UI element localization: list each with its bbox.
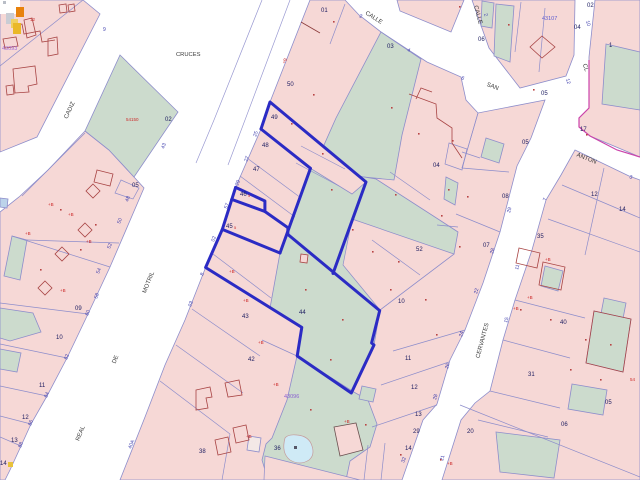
svg-text:+B: +B [447,461,453,466]
svg-text:+B: +B [258,340,264,345]
svg-text:05: 05 [522,140,529,146]
svg-text:31: 31 [528,372,535,378]
svg-text:36: 36 [274,446,281,452]
svg-text:40: 40 [560,320,567,326]
svg-text:+B: +B [246,434,252,439]
svg-text:47: 47 [253,167,260,173]
svg-text:35: 35 [537,234,544,240]
svg-text:+B: +B [243,298,249,303]
svg-text:14: 14 [619,207,626,213]
svg-text:08: 08 [502,194,509,200]
svg-text:17: 17 [580,127,587,133]
svg-text:05: 05 [541,91,548,97]
svg-text:13: 13 [11,438,18,444]
svg-text:43107: 43107 [542,16,557,22]
svg-text:14: 14 [405,446,412,452]
svg-text:11: 11 [39,383,46,389]
svg-text:05: 05 [132,183,139,189]
svg-text:04: 04 [433,163,440,169]
svg-text:52: 52 [416,247,423,253]
svg-text:07: 07 [483,243,490,249]
svg-text:+B: +B [273,382,279,387]
svg-text:44: 44 [299,310,306,316]
svg-text:11: 11 [405,356,412,362]
svg-text:49: 49 [271,115,278,121]
svg-text:43096: 43096 [284,394,299,400]
svg-text:10: 10 [398,299,405,305]
svg-text:43093: 43093 [2,46,17,52]
svg-text:45: 45 [226,224,233,230]
svg-text:43: 43 [242,314,249,320]
svg-text:+B: +B [60,288,66,293]
svg-text:12: 12 [30,17,36,22]
svg-text:50: 50 [287,82,294,88]
svg-text:12: 12 [411,385,418,391]
svg-text:+B: +B [545,257,551,262]
svg-text:9: 9 [103,27,106,33]
svg-text:42: 42 [248,357,255,363]
svg-text:09: 09 [75,306,82,312]
svg-text:14: 14 [0,461,7,467]
svg-text:29: 29 [413,429,420,435]
svg-text:48: 48 [262,143,269,149]
svg-text:02: 02 [165,117,172,123]
svg-text:05: 05 [605,400,612,406]
svg-text:03: 03 [387,44,394,50]
svg-text:04: 04 [574,25,581,31]
svg-text:+B: +B [513,306,519,311]
svg-text:+B: +B [25,231,31,236]
svg-text:54150: 54150 [126,117,139,122]
svg-text:+B: +B [68,212,74,217]
svg-text:01: 01 [321,8,328,14]
svg-text:13: 13 [415,412,422,418]
svg-text:46: 46 [240,192,247,198]
svg-text:+B: +B [48,202,54,207]
svg-text:20: 20 [467,429,474,435]
svg-text:+B: +B [527,295,533,300]
svg-text:06: 06 [478,37,485,43]
svg-text:12: 12 [591,192,598,198]
svg-text:10: 10 [56,335,63,341]
svg-text:CRUCES: CRUCES [176,52,201,58]
svg-text:06: 06 [561,422,568,428]
svg-text:54: 54 [630,377,636,382]
svg-text:+B: +B [344,419,350,424]
svg-text:38: 38 [199,449,206,455]
svg-text:+B: +B [229,269,235,274]
svg-text:02: 02 [587,3,594,9]
svg-text:+B: +B [86,239,92,244]
